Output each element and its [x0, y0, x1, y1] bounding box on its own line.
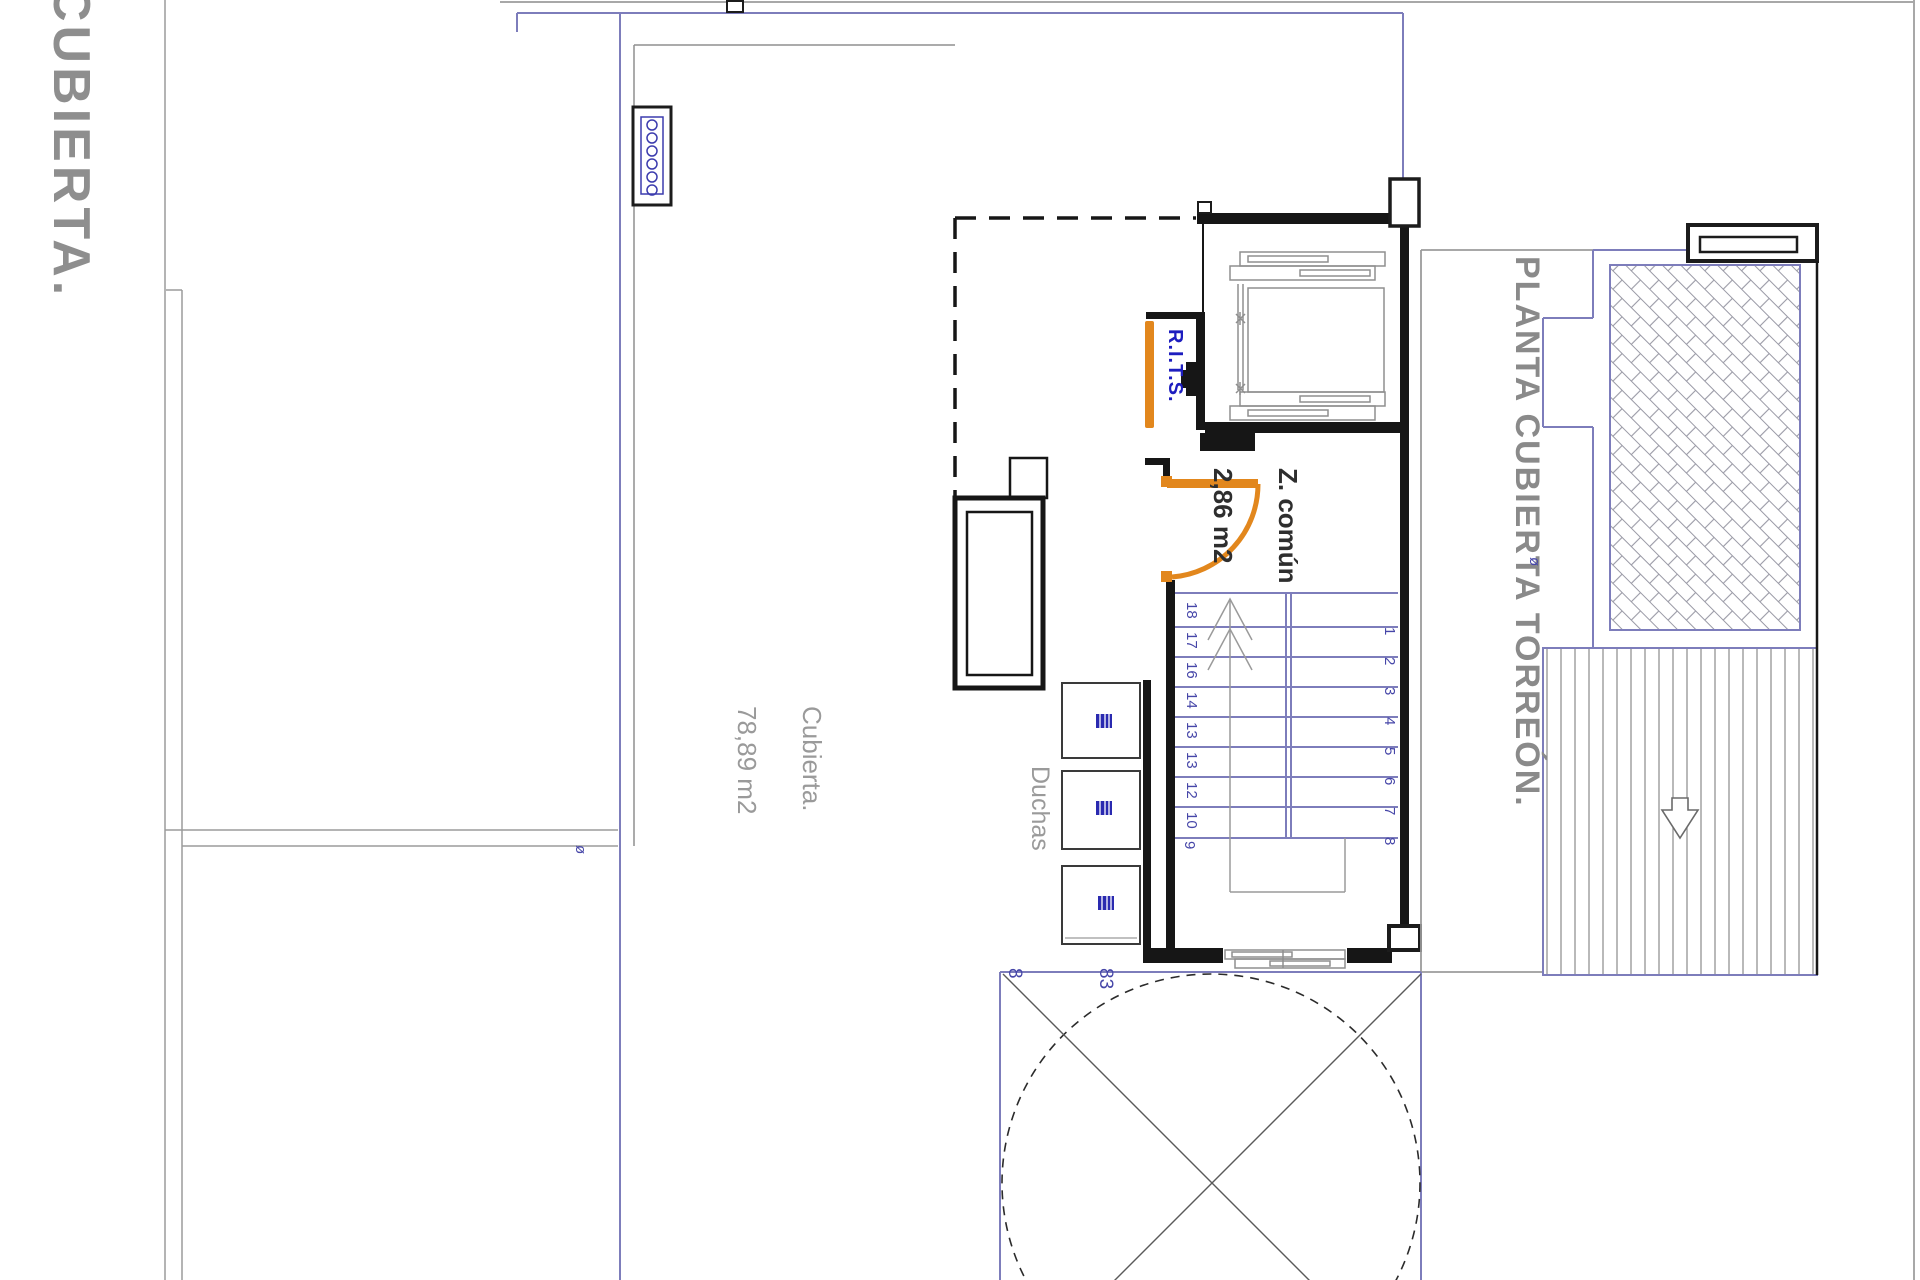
sheet-side-title: CUBIERTA.	[42, 0, 100, 299]
common-zone-label: Z. común 2,86 m2	[1172, 468, 1338, 584]
stair-number-left: 12	[1182, 782, 1199, 799]
vent-grille-icon	[633, 107, 671, 205]
common-zone-value: 2,86 m2	[1208, 468, 1237, 584]
plan-drawing	[0, 0, 1920, 1280]
roof-edge-notch	[727, 1, 743, 12]
common-zone-name: Z. común	[1273, 468, 1302, 584]
left-roof-lines	[165, 0, 618, 1280]
sliding-door-symbol	[1225, 950, 1345, 968]
stair-walkline	[1208, 599, 1345, 892]
shower-drain-icon	[1096, 714, 1114, 910]
staircase	[1175, 593, 1398, 838]
stair-number-left: 17	[1182, 632, 1199, 649]
courtyard-mark: 8	[1004, 968, 1025, 979]
roof-area-value: 78,89 m2	[732, 706, 761, 814]
tower-walls	[1143, 213, 1409, 963]
herringbone-paving	[1610, 265, 1800, 630]
roof-area-name: Cubierta.	[797, 706, 826, 814]
stair-number-left: 13	[1182, 722, 1199, 739]
courtyard-mark: 83	[1095, 968, 1116, 989]
stair-number-landing: 9	[1180, 841, 1197, 849]
dashed-projection	[955, 218, 1196, 498]
pillar-bottom-right	[1389, 926, 1420, 950]
pillar-top-right	[1390, 179, 1419, 226]
wall-notch	[1198, 202, 1211, 213]
stair-number-right: 5	[1380, 747, 1397, 755]
stair-number-right: 4	[1380, 717, 1397, 725]
stair-number-left: 13	[1182, 752, 1199, 769]
telecom-room-label: R.I.T.S.	[1164, 329, 1186, 403]
roof-area-label: Cubierta. 78,89 m2	[696, 706, 862, 814]
terrace	[1421, 225, 1817, 975]
stair-number-right: 6	[1380, 777, 1397, 785]
elevator-symbol	[1230, 252, 1385, 420]
stair-number-right: 1	[1380, 627, 1397, 635]
stair-number-right: 3	[1380, 687, 1397, 695]
skylight-box	[955, 458, 1047, 688]
stair-number-right: 2	[1380, 657, 1397, 665]
courtyard	[1000, 972, 1421, 1280]
floor-plan-sheet: CUBIERTA. PLANTA CUBIERTA TORREÓN. Cubie…	[0, 0, 1920, 1280]
stair-number-left: 16	[1182, 662, 1199, 679]
showers-label: Duchas	[1026, 766, 1054, 851]
stair-number-right: 8	[1380, 837, 1397, 845]
drain-mark-icon: ø	[1525, 557, 1542, 566]
stair-number-left: 18	[1182, 602, 1199, 619]
drain-mark-icon: ø	[571, 845, 588, 854]
stair-number-left: 10	[1182, 812, 1199, 829]
antenna-icon	[1186, 362, 1198, 396]
sheet-border	[500, 0, 1914, 1280]
stair-number-left: 14	[1182, 692, 1199, 709]
plan-title: PLANTA CUBIERTA TORREÓN.	[1508, 256, 1546, 808]
stair-number-right: 7	[1380, 807, 1397, 815]
